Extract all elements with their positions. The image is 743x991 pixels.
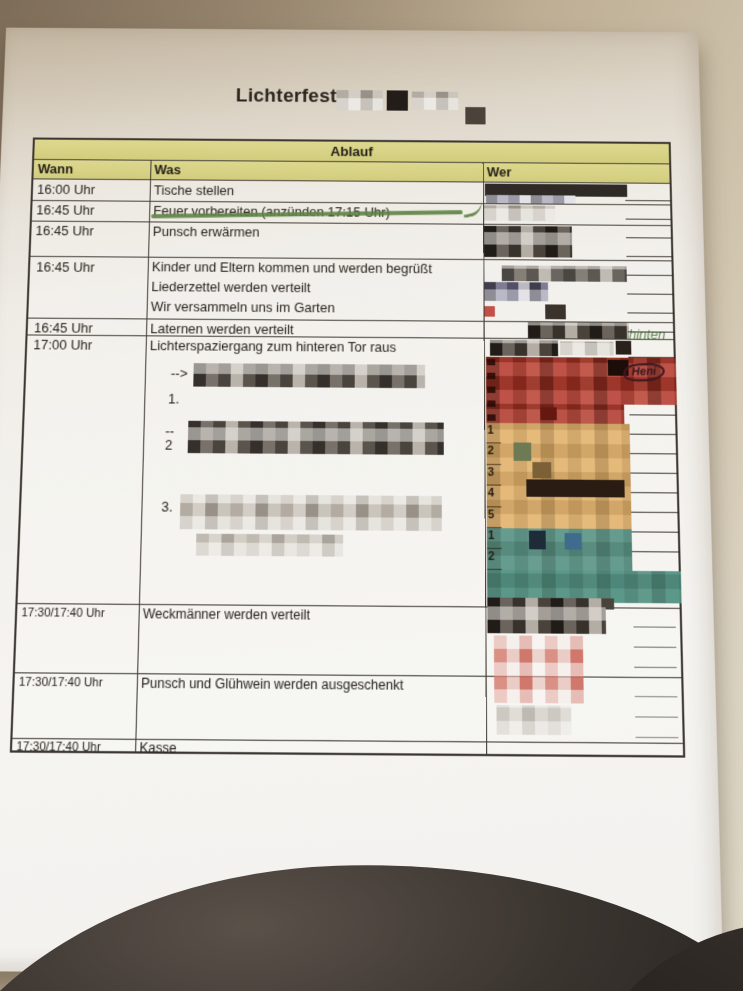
redacted-block bbox=[486, 195, 576, 204]
row-6-marker-1: 1. bbox=[168, 391, 180, 407]
ruled-lines bbox=[625, 183, 675, 340]
orange-row-number: 4 bbox=[488, 487, 494, 500]
redacted-block bbox=[484, 282, 548, 301]
orange-row-number: 5 bbox=[488, 508, 494, 521]
row-6-wann: 17:00 Uhr bbox=[33, 337, 92, 353]
redacted-block bbox=[412, 92, 458, 111]
ruled-lines bbox=[634, 677, 678, 743]
row-6-marker-arrow: --> bbox=[171, 365, 188, 381]
row-7-wann: 17:30/17:40 Uhr bbox=[21, 606, 105, 620]
orange-row-number: 3 bbox=[488, 466, 494, 479]
orange-row-number: 2 bbox=[487, 445, 493, 458]
row-5-was: Laternen werden verteilt bbox=[150, 321, 294, 338]
redacted-block bbox=[485, 306, 495, 317]
redacted-block bbox=[616, 341, 632, 355]
paper-sheet: Lichterfest Ablauf Wann bbox=[0, 28, 723, 977]
row-7-was: Weckmänner werden verteilt bbox=[143, 606, 310, 623]
teal-row-number: 2 bbox=[488, 550, 495, 563]
redacted-block bbox=[502, 265, 627, 282]
redacted-block bbox=[540, 407, 557, 420]
row-6-marker-2: 2 bbox=[165, 437, 173, 453]
redacted-block bbox=[565, 533, 582, 550]
row-divider bbox=[32, 221, 671, 227]
schedule-table: Ablauf Wann Was Wer 16:00 Uhr Tische ste… bbox=[10, 138, 685, 758]
column-divider-wann-was bbox=[135, 160, 152, 752]
row-1-was: Tische stellen bbox=[154, 182, 235, 198]
row-6-was: Lichterspaziergang zum hinteren Tor raus bbox=[150, 337, 397, 355]
redacted-block bbox=[196, 534, 343, 557]
row-1-wann: 16:00 Uhr bbox=[37, 181, 95, 197]
row-divider bbox=[12, 738, 682, 744]
row-3-was: Punsch erwärmen bbox=[153, 223, 260, 239]
teal-row-number: 1 bbox=[488, 529, 495, 542]
row-6-marker-3: 3. bbox=[161, 498, 173, 514]
redacted-block bbox=[528, 322, 629, 339]
redacted-block bbox=[513, 442, 531, 460]
redacted-block bbox=[560, 341, 614, 355]
orange-row-number: 1 bbox=[487, 424, 493, 437]
redacted-block bbox=[487, 606, 606, 634]
redacted-block bbox=[529, 531, 546, 550]
redacted-block bbox=[484, 205, 555, 221]
row-4-was-line2: Liederzettel werden verteilt bbox=[151, 279, 311, 296]
row-9-was: Kasse bbox=[139, 740, 177, 756]
row-4-was-line1: Kinder und Eltern kommen und werden begr… bbox=[152, 259, 432, 277]
redacted-block bbox=[494, 635, 584, 703]
row-8-was: Punsch und Glühwein werden ausgeschenkt bbox=[141, 675, 404, 693]
page-title: Lichterfest bbox=[236, 85, 337, 108]
row-4-wann: 16:45 Uhr bbox=[36, 259, 95, 275]
group-orange: 1 2 3 4 5 bbox=[486, 423, 631, 529]
row-2-wann: 16:45 Uhr bbox=[36, 202, 95, 218]
col-header-was: Was bbox=[154, 162, 181, 178]
col-header-wann: Wann bbox=[38, 161, 74, 177]
redacted-block bbox=[188, 421, 444, 455]
row-4-was-line3: Wir versammeln uns im Garten bbox=[151, 298, 335, 315]
group-teal-numbered: 1 2 bbox=[487, 528, 633, 571]
photo-of-schedule: Lichterfest Ablauf Wann bbox=[0, 0, 743, 991]
row-3-wann: 16:45 Uhr bbox=[35, 223, 94, 239]
row-5-wann: 16:45 Uhr bbox=[34, 320, 93, 336]
row-9-wann: 17:30/17:40 Uhr bbox=[16, 740, 101, 754]
redacted-block bbox=[193, 363, 425, 388]
redacted-block bbox=[336, 90, 382, 111]
redacted-block bbox=[465, 107, 485, 124]
redacted-block bbox=[180, 494, 442, 531]
redacted-block bbox=[545, 304, 566, 319]
redacted-block bbox=[484, 226, 572, 258]
redacted-block bbox=[387, 90, 408, 110]
redacted-block bbox=[526, 479, 624, 497]
redacted-block bbox=[532, 462, 551, 478]
redacted-block bbox=[496, 705, 571, 735]
ruled-lines bbox=[633, 607, 677, 677]
group-red-narrow bbox=[486, 404, 624, 424]
row-8-wann: 17:30/17:40 Uhr bbox=[19, 676, 103, 690]
redacted-block bbox=[490, 340, 558, 356]
col-header-wer: Wer bbox=[487, 164, 512, 180]
vertical-pen-marks bbox=[487, 359, 496, 421]
